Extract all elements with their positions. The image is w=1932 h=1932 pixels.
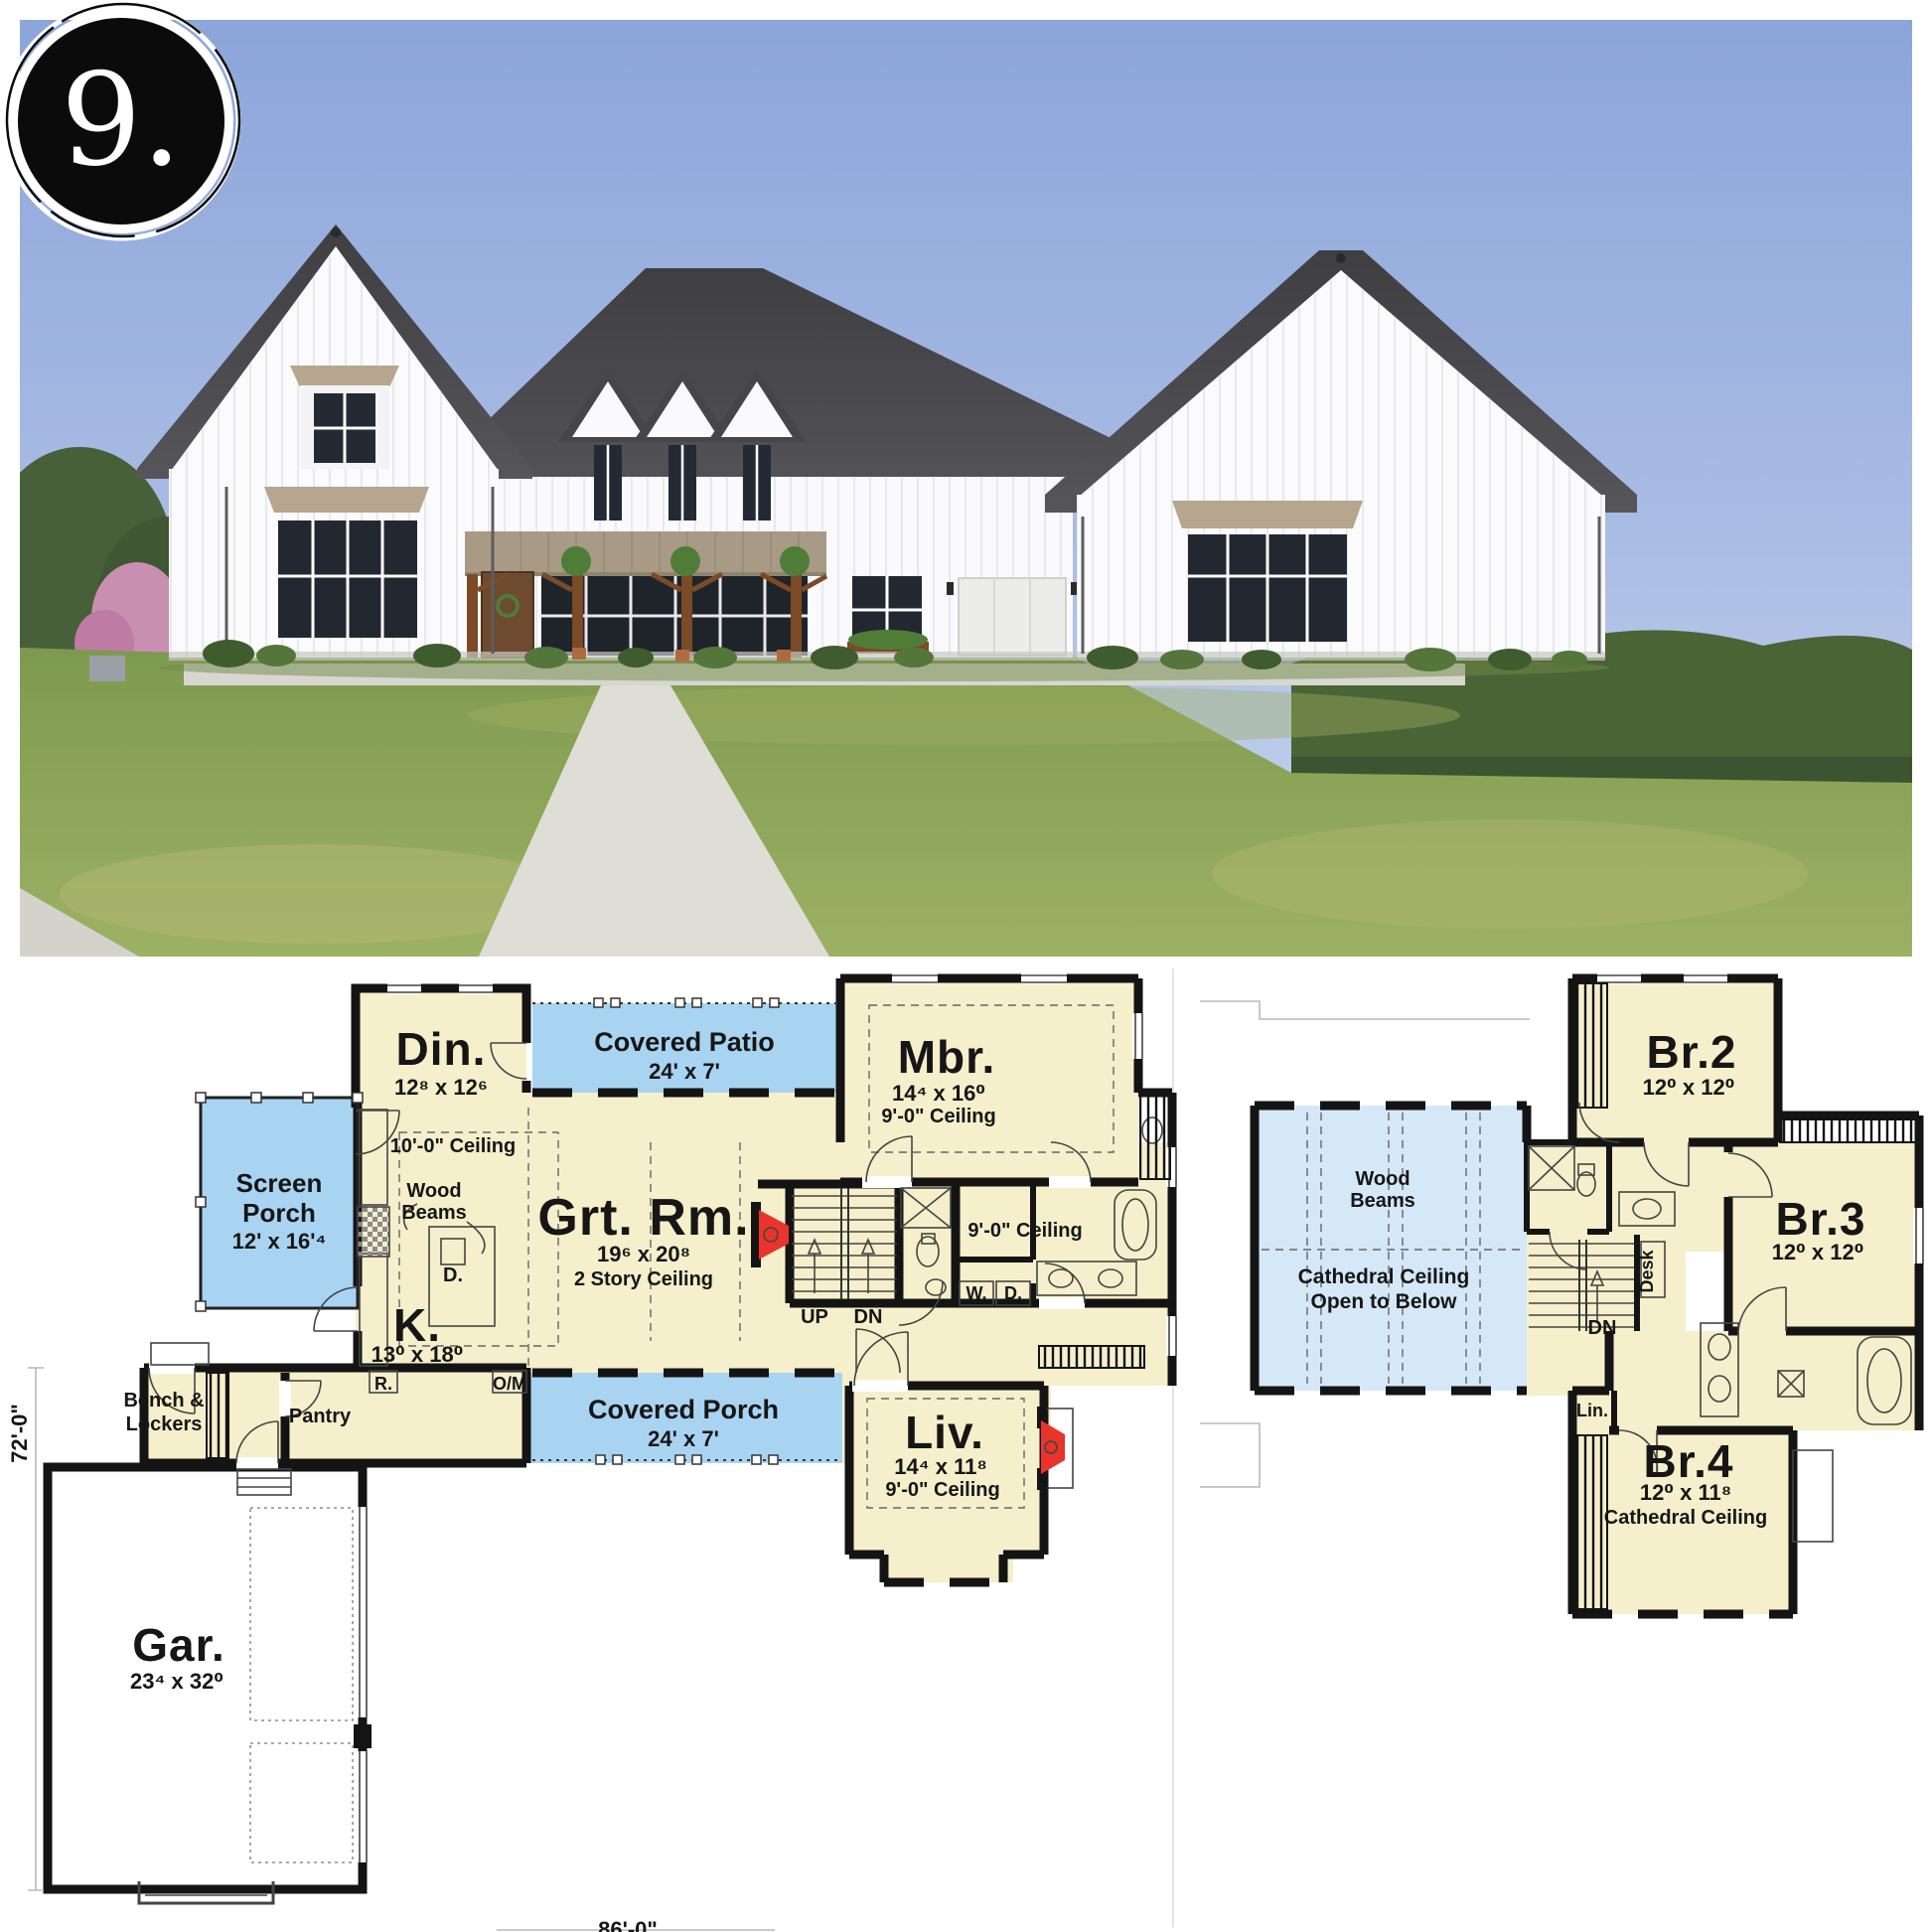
screen-porch-dims: 12' x 16'⁴ bbox=[232, 1229, 327, 1254]
range bbox=[358, 1207, 389, 1257]
gablets bbox=[558, 370, 807, 520]
br3-label: Br.3 bbox=[1776, 1193, 1866, 1245]
badge-number: 9. bbox=[61, 47, 182, 195]
wood-beams2-label-1: Wood bbox=[1355, 1168, 1410, 1190]
kitchen-ceiling-label: 10'-0" Ceiling bbox=[390, 1135, 517, 1157]
garage-door bbox=[959, 578, 1066, 656]
bench-lockers-label-2: Lockers bbox=[126, 1413, 203, 1435]
open-below-label-1: Cathedral Ceiling bbox=[1298, 1265, 1470, 1288]
br3-dims: 12⁰ x 12⁰ bbox=[1772, 1240, 1864, 1264]
right-awning bbox=[1172, 501, 1363, 528]
item-number-badge: 9. bbox=[0, 0, 248, 253]
tower-awning bbox=[290, 366, 399, 387]
open-below-label-2: Open to Below bbox=[1311, 1290, 1458, 1313]
living-ceiling: 9'-0" Ceiling bbox=[885, 1479, 999, 1501]
washer-label: W. bbox=[966, 1283, 987, 1303]
second-floor-plan: Br.2 12⁰ x 12⁰ Br.3 12⁰ x 12⁰ Br.4 12⁰ x… bbox=[1200, 972, 1925, 1614]
br4-dims: 12⁰ x 11⁸ bbox=[1640, 1480, 1731, 1505]
mbr-dims: 14⁴ x 16⁰ bbox=[892, 1081, 985, 1106]
screen-porch-label-1: Screen bbox=[236, 1168, 323, 1198]
farmhouse-photo bbox=[20, 20, 1912, 957]
br2-dims: 12⁰ x 12⁰ bbox=[1643, 1075, 1735, 1100]
covered-porch-dims: 24' x 7' bbox=[648, 1426, 719, 1451]
screen-porch-label-2: Porch bbox=[242, 1198, 316, 1228]
kitchen-dims: 13⁰ x 18⁰ bbox=[372, 1342, 464, 1367]
covered-porch-label: Covered Porch bbox=[588, 1395, 779, 1424]
wood-beams-label-1: Wood bbox=[406, 1180, 461, 1202]
dishwasher-label: D. bbox=[443, 1264, 463, 1286]
living-dims: 14⁴ x 11⁸ bbox=[894, 1454, 986, 1479]
bench-lockers-label-1: Bench & bbox=[123, 1390, 204, 1412]
br4-ceiling: Cathedral Ceiling bbox=[1604, 1507, 1767, 1529]
patio-dims: 24' x 7' bbox=[649, 1059, 720, 1084]
tower-lower-awning bbox=[264, 487, 429, 513]
wood-beams2-label-2: Beams bbox=[1350, 1190, 1415, 1212]
br2-label: Br.2 bbox=[1647, 1026, 1737, 1078]
floor-plans: Din. 12⁸ x 12⁶ Covered Patio 24' x 7' Mb… bbox=[0, 954, 1932, 1932]
living-label: Liv. bbox=[905, 1407, 984, 1458]
first-floor-plan: Din. 12⁸ x 12⁶ Covered Patio 24' x 7' Mb… bbox=[7, 972, 1178, 1932]
open-to-below-area bbox=[1255, 1106, 1527, 1391]
mbr-label: Mbr. bbox=[898, 1031, 996, 1083]
garage-dims: 23⁴ x 32⁰ bbox=[130, 1669, 223, 1694]
great-room-dims: 19⁶ x 20⁸ bbox=[597, 1242, 690, 1266]
oven-micro-label: O/M bbox=[493, 1374, 526, 1394]
mbr-ceiling: 9'-0" Ceiling bbox=[881, 1106, 995, 1127]
pantry-label: Pantry bbox=[289, 1406, 352, 1427]
din-label: Din. bbox=[396, 1023, 487, 1075]
dryer-label: D. bbox=[1004, 1283, 1022, 1303]
garage-label: Gar. bbox=[132, 1619, 225, 1671]
bath-ceiling-label: 9'-0" Ceiling bbox=[967, 1220, 1082, 1242]
stairs2-dn-label: DN bbox=[1588, 1317, 1617, 1339]
linen-label: Lin. bbox=[1576, 1401, 1608, 1420]
porch-roof bbox=[465, 531, 826, 574]
great-room-ceiling: 2 Story Ceiling bbox=[574, 1268, 713, 1290]
page: 9. bbox=[0, 0, 1932, 1932]
living-room-fireplace bbox=[1037, 1407, 1073, 1490]
stairs-dn-label: DN bbox=[854, 1306, 883, 1328]
depth-dimension: 72'-0" bbox=[7, 1404, 32, 1463]
din-dims: 12⁸ x 12⁶ bbox=[394, 1075, 488, 1100]
desk-label: Desk bbox=[1637, 1249, 1657, 1292]
stairs-up-label: UP bbox=[801, 1306, 828, 1328]
ac-unit bbox=[89, 656, 125, 681]
width-dimension: 86'-0" bbox=[598, 1917, 658, 1932]
wood-beams-label-2: Beams bbox=[401, 1202, 467, 1224]
patio-label: Covered Patio bbox=[594, 1027, 775, 1057]
fridge-label: R. bbox=[374, 1374, 392, 1394]
great-room-label: Grt. Rm. bbox=[537, 1189, 749, 1247]
